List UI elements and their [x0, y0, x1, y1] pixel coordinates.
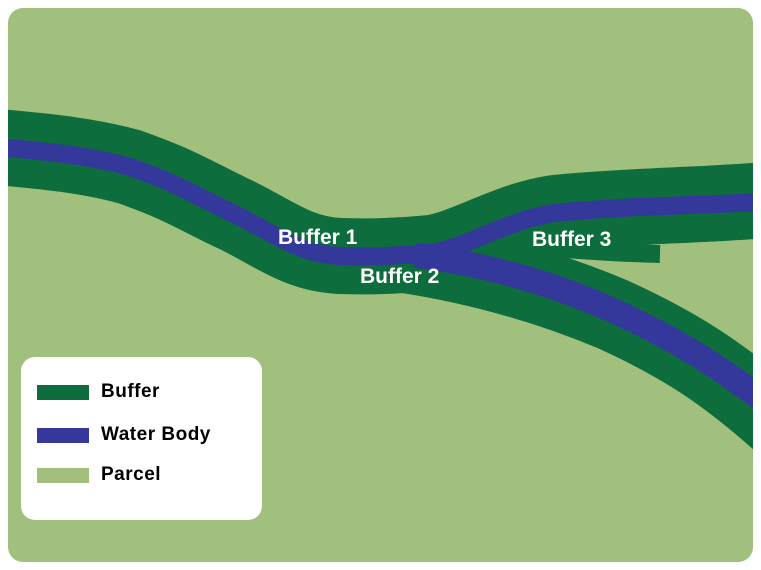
legend-label-buffer: Buffer — [101, 381, 160, 403]
legend: Buffer Water Body Parcel — [21, 357, 262, 520]
map-figure: Buffer 1 Buffer 2 Buffer 3 Buffer Water … — [0, 0, 761, 570]
parcel-swatch-icon — [37, 468, 89, 483]
water-body-swatch-icon — [37, 428, 89, 443]
buffer-swatch-icon — [37, 385, 89, 400]
legend-item-water-body: Water Body — [37, 425, 211, 445]
legend-label-parcel: Parcel — [101, 464, 161, 486]
parcel-map: Buffer 1 Buffer 2 Buffer 3 Buffer Water … — [8, 8, 753, 562]
legend-label-water-body: Water Body — [101, 424, 211, 446]
buffer-3-label: Buffer 3 — [532, 228, 611, 252]
buffer-1-label: Buffer 1 — [278, 226, 357, 250]
buffer-2-label: Buffer 2 — [360, 265, 439, 289]
legend-item-parcel: Parcel — [37, 465, 161, 485]
legend-item-buffer: Buffer — [37, 382, 160, 402]
